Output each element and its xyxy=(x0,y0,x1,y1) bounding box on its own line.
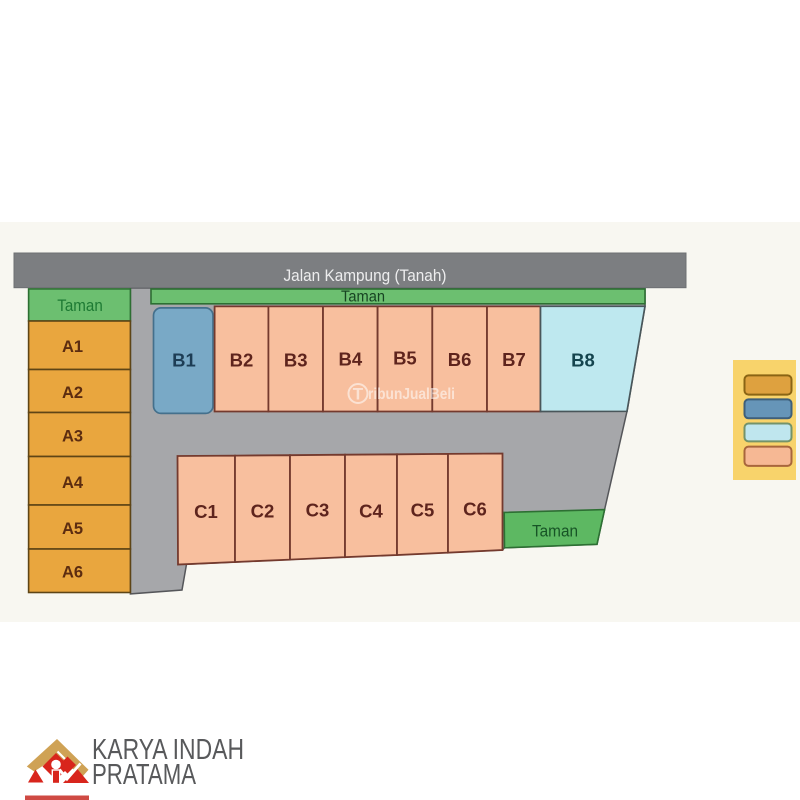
svg-text:A5: A5 xyxy=(62,520,83,538)
svg-text:A1: A1 xyxy=(62,338,83,356)
svg-text:B1: B1 xyxy=(172,350,196,371)
svg-text:C4: C4 xyxy=(359,501,383,522)
svg-text:B7: B7 xyxy=(502,349,526,370)
svg-text:ribunJualBeli: ribunJualBeli xyxy=(368,386,455,403)
svg-text:B5: B5 xyxy=(393,348,417,369)
svg-text:Jalan Kampung (Tanah): Jalan Kampung (Tanah) xyxy=(284,266,447,285)
svg-text:C1: C1 xyxy=(194,501,218,522)
svg-text:B3: B3 xyxy=(284,350,308,371)
svg-text:B6: B6 xyxy=(448,349,472,370)
svg-text:C2: C2 xyxy=(251,501,275,522)
svg-text:A4: A4 xyxy=(62,474,84,492)
svg-text:B2: B2 xyxy=(230,350,254,371)
svg-text:C6: C6 xyxy=(463,499,487,520)
svg-text:B8: B8 xyxy=(571,350,595,371)
svg-text:A2: A2 xyxy=(62,384,83,402)
svg-text:A6: A6 xyxy=(62,564,83,582)
svg-text:A3: A3 xyxy=(62,428,83,446)
svg-text:Taman: Taman xyxy=(57,296,103,315)
svg-text:C3: C3 xyxy=(306,500,330,521)
svg-text:Taman: Taman xyxy=(532,523,578,541)
svg-text:T: T xyxy=(353,385,364,404)
svg-text:C5: C5 xyxy=(411,500,435,521)
svg-text:B4: B4 xyxy=(338,349,362,370)
svg-text:PRATAMA: PRATAMA xyxy=(92,759,196,791)
svg-text:Taman: Taman xyxy=(341,289,385,306)
